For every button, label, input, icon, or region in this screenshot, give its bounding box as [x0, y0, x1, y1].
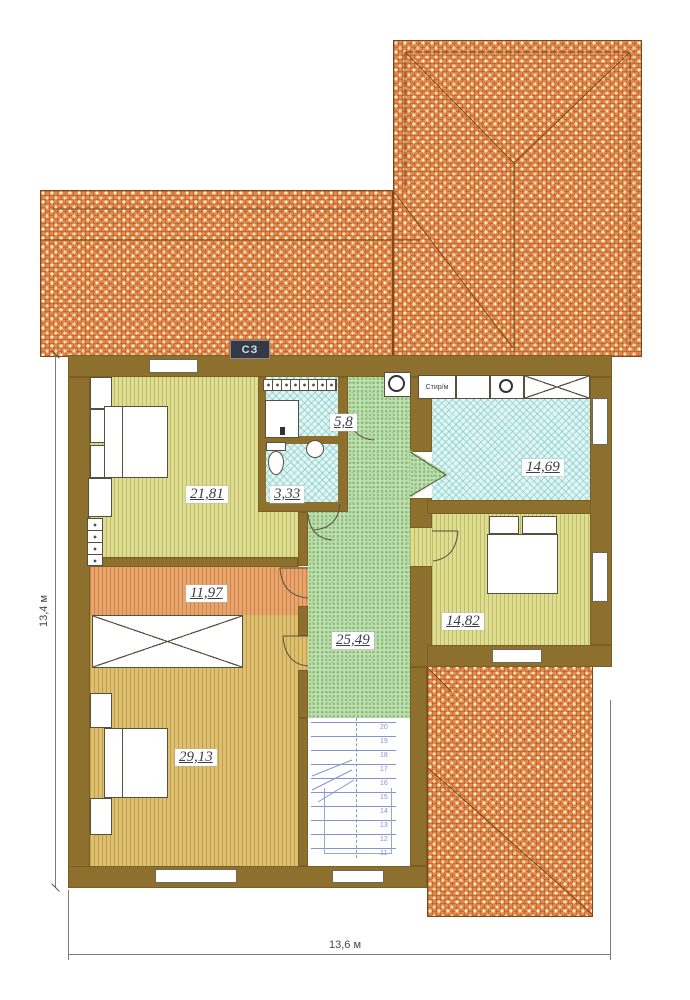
- window-bottom-bedroom2: [492, 649, 542, 663]
- dimension-label-left: 13,4 м: [38, 581, 50, 641]
- compass-badge: СЗ: [230, 340, 270, 359]
- laundry-radiator: [263, 379, 337, 391]
- stair-winder-lines: [308, 718, 410, 866]
- bedroom1-dresser: [88, 478, 112, 517]
- laundry-sink: [265, 400, 299, 438]
- washing-machine-drum-icon: [388, 375, 405, 392]
- bedroom2-door-gap: [410, 528, 432, 566]
- roof-top-right-section: [393, 40, 642, 357]
- dimension-label-bottom: 13,6 м: [310, 939, 380, 951]
- wall-hall-left-b: [298, 606, 308, 636]
- hall-floor-main: [308, 502, 410, 718]
- corridor-area-label: 11,97: [186, 585, 227, 602]
- toilet-tank: [266, 442, 286, 451]
- bedroom1-bed: [104, 406, 168, 478]
- bedroom2-bed: [487, 534, 558, 594]
- compass-label: СЗ: [242, 344, 259, 356]
- bedroom2-pillow-left: [489, 516, 519, 534]
- hall-area-label: 25,49: [332, 632, 374, 649]
- bathroom-area-label: 14,69: [522, 459, 564, 476]
- bedroom2-pillow-right: [522, 516, 557, 534]
- washer-label: Стир/м: [426, 384, 449, 391]
- bathroom-sink: [490, 375, 524, 399]
- washing-machine: [384, 372, 411, 397]
- bedroom1-bed-pillow: [105, 407, 123, 477]
- wall-corridor-top: [90, 557, 298, 567]
- window-right-bedroom2: [592, 552, 608, 602]
- window-top: [149, 359, 198, 373]
- bedroom3-nightstand-top: [90, 693, 112, 728]
- bathroom-cabinet-x: [524, 375, 590, 399]
- corridor-wardrobe-x: [92, 615, 243, 668]
- window-bottom-bedroom3: [155, 869, 237, 883]
- roof-bottom-right-section: [427, 665, 593, 917]
- bedroom3-bed: [104, 728, 168, 798]
- wall-stair-right: [410, 667, 427, 866]
- wall-wing-divider: [427, 500, 612, 514]
- bedroom1-radiator: [87, 518, 103, 566]
- laundry-sink-faucet: [280, 427, 285, 435]
- bedroom1-area-label: 21,81: [186, 486, 228, 503]
- dimension-line-left: [55, 355, 56, 888]
- bedroom3-area-label: 29,13: [175, 749, 217, 766]
- dimension-ext-left: [68, 890, 69, 960]
- bedroom3-nightstand-bottom: [90, 798, 112, 835]
- bathroom-counter: [456, 375, 490, 399]
- bedroom2-area-label: 14,82: [442, 613, 484, 630]
- wall-hall-left-a: [298, 512, 308, 566]
- dimension-ext-right: [610, 700, 611, 960]
- wc-sink: [306, 440, 324, 458]
- roof-left-section: [40, 190, 393, 357]
- wc-area-label: 3,33: [270, 486, 304, 503]
- wall-left: [68, 377, 90, 888]
- bathroom-washer-box: Стир/м: [418, 375, 456, 399]
- staircase: 20 19 18 17 16 15 14 13 12 11: [308, 718, 410, 866]
- wall-stair-left: [298, 718, 308, 866]
- bathroom-sink-bowl-icon: [499, 379, 513, 393]
- floor-plan-canvas: Стир/м 20 19 18 17 16 15 14 13 12 11: [0, 0, 690, 1000]
- laundry-area-label: 5,8: [330, 414, 357, 431]
- wall-hall-left-c: [298, 670, 308, 718]
- dimension-line-bottom: [68, 954, 610, 955]
- window-right-bathroom: [592, 398, 608, 445]
- bedroom3-bed-pillow: [105, 729, 123, 797]
- bedroom1-cabinet: [90, 377, 112, 409]
- window-bottom-stairs: [332, 870, 384, 883]
